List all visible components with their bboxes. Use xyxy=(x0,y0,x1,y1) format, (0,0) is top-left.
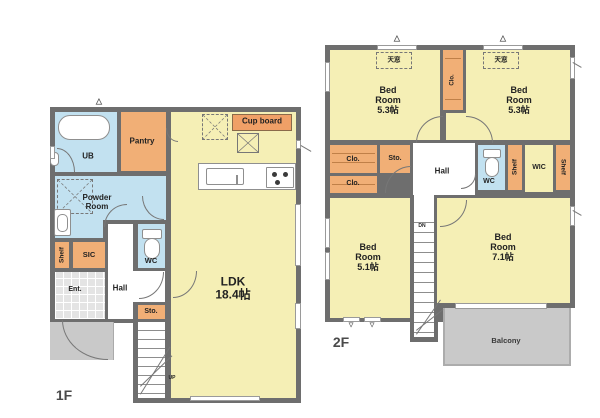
label-wc2: WC xyxy=(483,178,495,186)
label-shelf-left: Shelf xyxy=(511,159,518,175)
label-wic: WIC xyxy=(532,164,546,172)
window xyxy=(570,57,575,79)
vent-mark: △ xyxy=(394,35,400,44)
closet-shelf-line xyxy=(332,153,375,154)
label-shelf-right: Shelf xyxy=(559,159,566,175)
window xyxy=(343,317,360,322)
label-bed53-left: Bed Room 5.3帖 xyxy=(375,85,401,115)
room-bed53-right xyxy=(446,113,466,140)
window xyxy=(325,252,330,280)
window xyxy=(325,218,330,248)
floorplan-canvas: UBPantryPowder RoomShelfSICEnt.HallWCSto… xyxy=(0,0,600,418)
floorplan-2f: Bed Room 5.3帖Bed Room 5.3帖天窓天窓Clo.Clo.Cl… xyxy=(0,0,600,418)
label-dn: DN xyxy=(418,224,425,230)
balcony-window xyxy=(455,303,547,309)
label-skylight: 天窓 xyxy=(495,56,508,63)
label-bed53-right: Bed Room 5.3帖 xyxy=(506,85,532,115)
window xyxy=(364,317,381,322)
label-bed51: Bed Room 5.1帖 xyxy=(355,242,381,272)
label-clo-bottom: Clo. xyxy=(346,180,359,188)
window xyxy=(325,62,330,92)
label-hall2: Hall xyxy=(435,168,450,177)
label-bed71: Bed Room 7.1帖 xyxy=(490,232,516,262)
vent-mark: △ xyxy=(500,35,506,44)
floor-label-2f: 2F xyxy=(333,335,349,351)
window xyxy=(483,45,523,50)
label-sto2: Sto. xyxy=(388,155,401,163)
room-hall2 xyxy=(414,195,434,213)
label-skylight: 天窓 xyxy=(388,56,401,63)
window-mark: ▽ xyxy=(370,323,375,330)
label-balcony: Balcony xyxy=(491,337,520,345)
label-clo-mid: Clo. xyxy=(450,74,457,85)
label-clo-top: Clo. xyxy=(346,156,359,164)
closet-shelf-line xyxy=(445,99,461,100)
closet-shelf-line xyxy=(445,58,461,59)
toilet-bowl xyxy=(485,157,499,177)
window xyxy=(377,45,417,50)
window-mark: ▽ xyxy=(349,323,354,330)
